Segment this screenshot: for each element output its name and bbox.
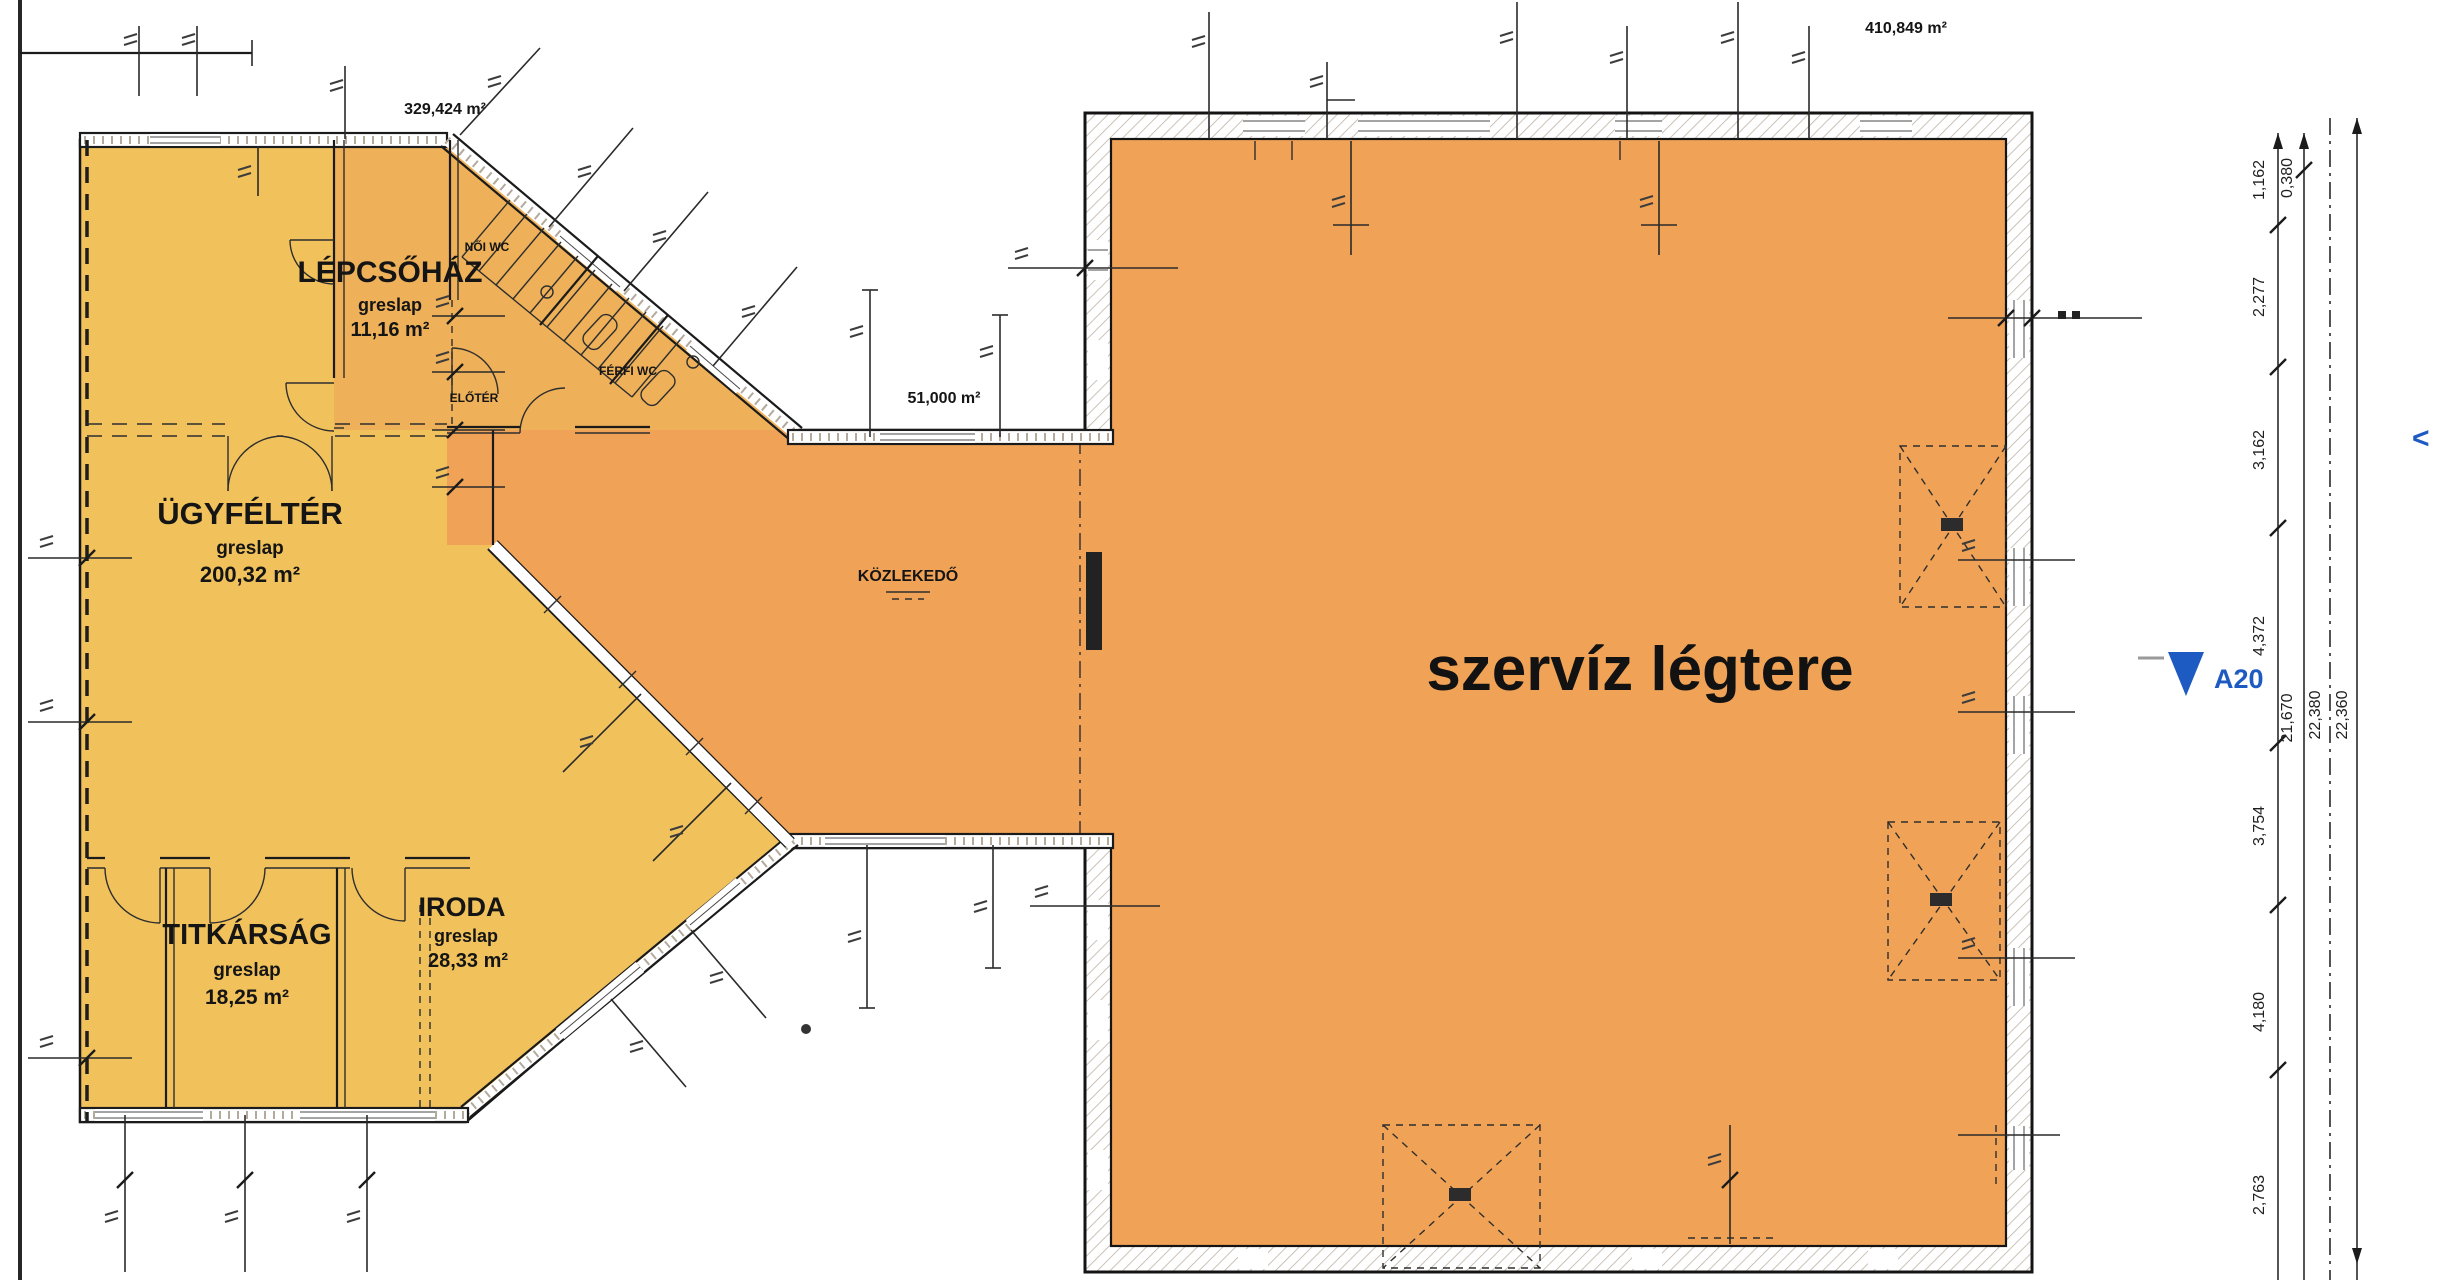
dim-offset: 0,380 — [2279, 158, 2296, 198]
room-finish-titkarsag: greslap — [213, 960, 281, 981]
dim-segment-5: 3,754 — [2251, 806, 2268, 846]
room-label-kozlekedo: KÖZLEKEDŐ — [858, 566, 958, 585]
room-area-iroda: 28,33 m² — [428, 950, 508, 972]
dim-segment-1: 1,162 — [2251, 160, 2268, 200]
dim-segment-3: 3,162 — [2251, 430, 2268, 470]
dim-segment-6: 4,180 — [2251, 992, 2268, 1032]
room-label-eloter: ELŐTÉR — [450, 390, 499, 405]
dim-segment-2: 2,277 — [2251, 277, 2268, 317]
section-marker-label: A20 — [2214, 664, 2264, 694]
scan-dot — [801, 1024, 811, 1034]
room-label-titkarsag: TITKÁRSÁG — [162, 917, 331, 951]
room-finish-lepcsohaz: greslap — [358, 295, 422, 315]
room-label-iroda: IRODA — [419, 892, 506, 922]
room-area-lepcsohaz: 11,16 m² — [351, 319, 430, 341]
chevron-left-icon[interactable]: < — [2412, 422, 2430, 455]
area-label-left-wing: 329,424 m² — [404, 101, 486, 118]
room-label-ugyfelter: ÜGYFÉLTÉR — [157, 496, 342, 531]
dim-segment-4: 4,372 — [2251, 616, 2268, 656]
dim-segment-7: 2,763 — [2251, 1175, 2268, 1215]
dim-subtotal: 21,670 — [2279, 693, 2296, 742]
dim-total-outer: 22,360 — [2334, 690, 2351, 739]
room-label-noi-wc: NŐI WC — [465, 239, 510, 254]
room-label-lepcsohaz: LÉPCSŐHÁZ — [297, 255, 482, 289]
room-finish-ugyfelter: greslap — [216, 538, 284, 559]
room-label-ferfi-wc: FÉRFI WC — [599, 363, 657, 378]
dim-total-inner: 22,380 — [2307, 690, 2324, 739]
room-area-ugyfelter: 200,32 m² — [200, 562, 300, 587]
room-finish-iroda: greslap — [434, 926, 498, 946]
wall-stub — [1086, 552, 1102, 650]
area-label-service-hall: 410,849 m² — [1865, 20, 1947, 37]
floor-plan-scan: LÉPCSŐHÁZ greslap 11,16 m² ÜGYFÉLTÉR gre… — [0, 0, 2457, 1280]
room-area-titkarsag: 18,25 m² — [205, 986, 289, 1009]
area-label-connector: 51,000 m² — [908, 390, 981, 407]
room-label-szerviz: szervíz légtere — [1426, 635, 1853, 704]
